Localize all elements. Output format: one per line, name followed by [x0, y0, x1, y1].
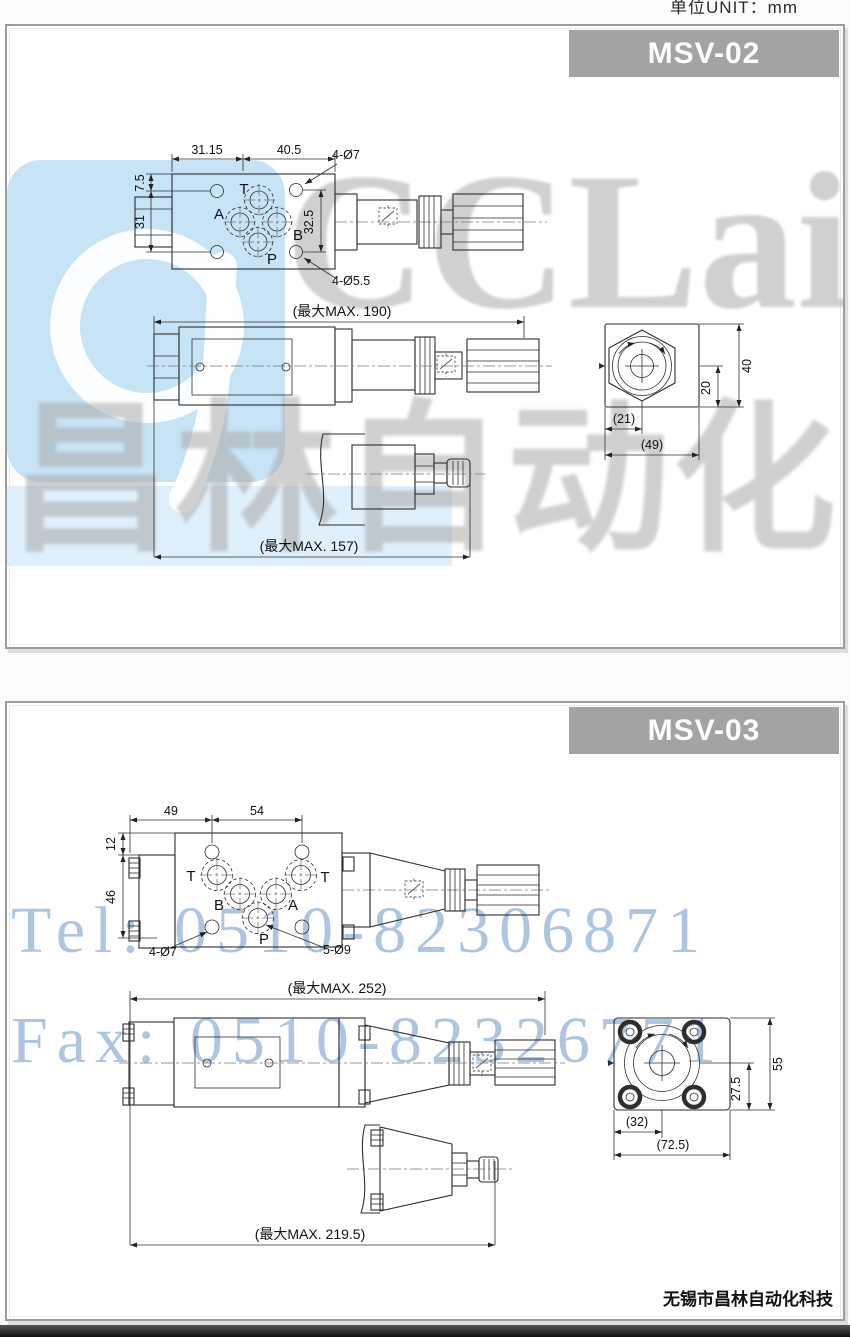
- msv03-drawing: T B A T P 49 54: [7, 703, 843, 1315]
- dim-49: 49: [164, 804, 178, 818]
- msv03-top-view: T B A T P 49 54: [104, 804, 549, 959]
- left-bracket-side: [123, 1022, 174, 1105]
- bottom-bar: [0, 1325, 850, 1337]
- dims-right: 32.5 4-Ø5.5: [302, 190, 370, 288]
- dim-54: 54: [250, 804, 264, 818]
- port-label-t1: T: [186, 868, 195, 885]
- dim-27-5: 27.5: [729, 1077, 743, 1101]
- msv02-screw-view: (最大MAX. 157): [154, 434, 485, 557]
- dim-32-5: 32.5: [302, 210, 316, 234]
- port-label-p: P: [259, 931, 269, 948]
- msv02-side-view: (最大MAX. 190): [147, 303, 552, 557]
- adjuster-top: [342, 853, 549, 939]
- dims-end-bottom: (21) (49): [605, 401, 699, 460]
- dim-7-5: 7.5: [133, 174, 147, 191]
- msv03-end-view: 55 27.5 (32) (72.5): [608, 1018, 785, 1160]
- msv03-side-view: (最大MAX. 252): [119, 980, 565, 1245]
- adjuster-top: [335, 194, 547, 250]
- nameplate: [192, 339, 292, 395]
- dims-top: 49 54: [130, 804, 302, 853]
- msv03-screw-view: (最大MAX. 219.5): [130, 1125, 515, 1245]
- valve-body: [175, 833, 342, 947]
- left-bracket: [129, 855, 175, 948]
- dim-31-15: 31.15: [191, 143, 222, 157]
- dim-4d55: 4-Ø5.5: [332, 274, 370, 288]
- port-label-t: T: [239, 181, 248, 198]
- dim-max157: (最大MAX. 157): [260, 538, 359, 554]
- dim-40-5: 40.5: [277, 143, 301, 157]
- dim-55: 55: [771, 1057, 785, 1071]
- model-label: MSV-03: [648, 714, 761, 748]
- port-label-t2: T: [320, 869, 329, 886]
- dim-49: (49): [641, 438, 663, 452]
- dim-21: (21): [613, 412, 635, 426]
- model-label: MSV-02: [648, 37, 761, 71]
- page: 单位UNIT：mm CCLair 昌林自动化: [0, 0, 850, 1337]
- panel-msv03: Tel: 0510-82306871 Fax: 0510-82326771: [5, 701, 845, 1321]
- dims-top: 31.15 40.5 4-Ø7: [172, 143, 360, 184]
- dim-max190: (最大MAX. 190): [293, 303, 392, 319]
- dims-end-right: 40 20: [699, 324, 754, 407]
- msv02-top-view: T A B P 31.15 40.5 4-Ø7: [133, 143, 547, 288]
- dims-end-right: 55 27.5: [700, 1018, 785, 1110]
- panel-msv02: CCLair 昌林自动化: [5, 24, 845, 649]
- dim-20: 20: [699, 381, 713, 395]
- dim-32: (32): [626, 1115, 648, 1129]
- dim-4d7: 4-Ø7: [332, 148, 360, 162]
- nameplate: [195, 1037, 280, 1088]
- ports: [224, 184, 293, 258]
- unit-label: 单位UNIT：mm: [670, 0, 798, 18]
- msv02-end-view: 40 20 (21) (49): [599, 324, 754, 460]
- port-label-b: B: [214, 897, 224, 914]
- dim-max252: (最大MAX. 252): [288, 980, 387, 996]
- model-header-msv03: MSV-03: [569, 707, 839, 754]
- mounting-holes: [205, 845, 309, 934]
- footer-company: 无锡市昌林自动化科技: [663, 1285, 833, 1310]
- port-label-a: A: [214, 206, 224, 223]
- dim-31: 31: [133, 215, 147, 229]
- dims-end-bottom: (32) (72.5): [614, 1110, 730, 1160]
- port-label-a: A: [288, 897, 298, 914]
- body-side: [174, 1018, 339, 1107]
- msv02-drawing: T A B P 31.15 40.5 4-Ø7: [7, 26, 843, 643]
- dim-12: 12: [104, 837, 118, 851]
- dim-46: 46: [104, 890, 118, 904]
- hex-nut-side: [154, 334, 179, 400]
- model-header-msv02: MSV-02: [569, 30, 839, 77]
- adjust-knob: [495, 1040, 555, 1085]
- adjust-knob: [467, 339, 539, 392]
- dim-72-5: (72.5): [657, 1138, 690, 1152]
- mounting-holes: [211, 184, 303, 259]
- port-label-p: P: [267, 251, 277, 268]
- dim-max219: (最大MAX. 219.5): [255, 1226, 365, 1242]
- dim-5d9: 5-Ø9: [323, 943, 351, 957]
- dim-40: 40: [740, 359, 754, 373]
